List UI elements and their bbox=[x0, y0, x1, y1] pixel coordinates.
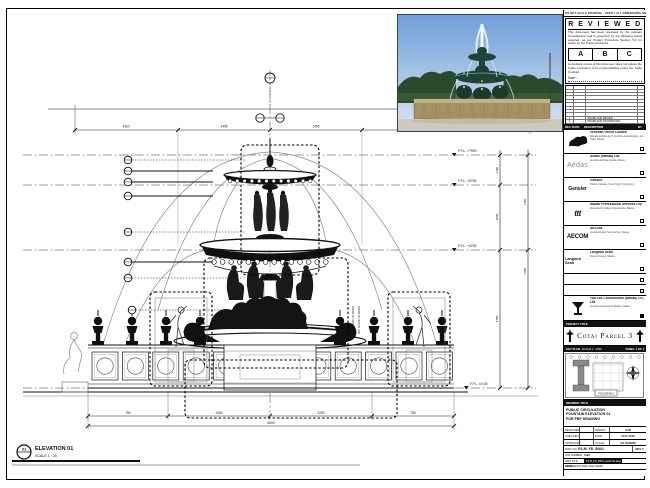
svg-text:ELEVATION 01: ELEVATION 01 bbox=[35, 446, 73, 452]
key-plan-map: FOUNTAIN bbox=[564, 352, 646, 400]
svg-text:2250: 2250 bbox=[215, 411, 222, 415]
approval-checkbox[interactable] bbox=[640, 267, 644, 271]
approval-checkbox[interactable] bbox=[640, 289, 644, 293]
svg-text:F.F.L. ±0.00: F.F.L. ±0.00 bbox=[470, 382, 488, 386]
svg-text:7900: 7900 bbox=[523, 267, 527, 274]
reviewed-stamp: R E V I E W E D This document has been r… bbox=[565, 18, 645, 84]
svg-text:750: 750 bbox=[125, 411, 131, 415]
svg-text:F.F.L. +6750: F.F.L. +6750 bbox=[458, 179, 477, 183]
gensler-logo: Gensler bbox=[565, 179, 590, 199]
status-options: A B C bbox=[568, 48, 642, 61]
ornament-icon bbox=[566, 329, 574, 342]
reviewed-paragraph-1: This document has been reviewed by the r… bbox=[568, 31, 642, 46]
status-option-b[interactable]: B bbox=[593, 49, 617, 60]
svg-text:01: 01 bbox=[22, 447, 27, 452]
approval-checkbox[interactable] bbox=[640, 219, 644, 223]
dwg-number-row: DWG NO. P3-M_FD_B501 REV 0 bbox=[564, 446, 646, 453]
company-block-aedas: Aedas Aedas (Macau) Ltd.Avenida da Praia… bbox=[564, 154, 646, 178]
aecom-logo: AECOM bbox=[565, 227, 590, 247]
svg-text:1150: 1150 bbox=[495, 166, 499, 173]
svg-text:750: 750 bbox=[410, 411, 416, 415]
contractor-block: Yau Lee Construction (Macau) Co., Ltd.Av… bbox=[564, 296, 646, 321]
svg-text:4110: 4110 bbox=[123, 125, 130, 129]
ground-line bbox=[23, 392, 538, 396]
svg-text:1495: 1495 bbox=[312, 125, 319, 129]
detail-tag-icons bbox=[256, 73, 284, 122]
company-block-aecom: AECOM AECOMAvenida Doutor Sun Yat-Sen, M… bbox=[564, 226, 646, 250]
revision-table: 1ISSUED FOR REVIEW 0ISSUED FOR INFORMATI… bbox=[565, 85, 645, 123]
langdon-seah-logo: Langdon Seah bbox=[565, 251, 590, 271]
svg-text:3150: 3150 bbox=[523, 198, 527, 205]
venetian-lion-icon bbox=[565, 131, 590, 151]
contractor-mark bbox=[640, 314, 644, 318]
empty-consultant-block bbox=[564, 274, 646, 285]
svg-text:6000: 6000 bbox=[267, 421, 274, 425]
title-block: DO NOT SCALE DRAWING · VERIFY ALL DIMENS… bbox=[563, 10, 646, 476]
fountain-photo bbox=[397, 14, 563, 132]
approval-checkbox[interactable] bbox=[640, 278, 644, 282]
svg-text:FRP SCOPE OF WORK: FRP SCOPE OF WORK bbox=[351, 306, 355, 334]
drawing-sheet: 4110 1495 1495 4110 bbox=[0, 0, 650, 488]
company-block-venetian: Venetian Orient LimitedEstrada da Baía d… bbox=[564, 130, 646, 154]
svg-text:F.F.L. +4750: F.F.L. +4750 bbox=[458, 244, 477, 248]
elevation-tag: 01 ELEVATION 01 SCALE 1 : 25 bbox=[12, 445, 360, 465]
photo-basin bbox=[414, 99, 550, 119]
svg-text:FRP SCOPE OF WORK: FRP SCOPE OF WORK bbox=[357, 306, 361, 334]
reviewed-paragraph-2: Consultant review of this document does … bbox=[568, 63, 642, 74]
svg-text:2250: 2250 bbox=[317, 411, 324, 415]
company-block-mps: ttt Macau Professional Services Ltd.Alam… bbox=[564, 202, 646, 226]
approval-checkbox[interactable] bbox=[640, 243, 644, 247]
aedas-logo: Aedas bbox=[565, 155, 590, 175]
frp-notes: FRP SCOPE OF WORK FRP SCOPE OF WORK bbox=[351, 306, 361, 334]
company-block-gensler: Gensler GenslerHarbour Square, Kwun Tong… bbox=[564, 178, 646, 202]
svg-text:SCALE 1 : 25: SCALE 1 : 25 bbox=[35, 454, 57, 458]
status-option-c[interactable]: C bbox=[618, 49, 641, 60]
svg-text:4750: 4750 bbox=[495, 315, 499, 322]
left-statue bbox=[62, 333, 88, 393]
status-option-a[interactable]: A bbox=[569, 49, 593, 60]
sheet-note: DO NOT SCALE DRAWING · VERIFY ALL DIMENS… bbox=[564, 10, 646, 17]
drawing-title: PUBLIC CIRCULATION FOUNTAIN ELEVATION 01… bbox=[564, 406, 646, 427]
project-title: Cotai Parcel 3 bbox=[564, 327, 646, 346]
reference-row: REFERENCE DWG FILE NAME : bbox=[564, 464, 646, 470]
mps-logo: ttt bbox=[565, 203, 590, 223]
svg-text:F.F.L. +7900: F.F.L. +7900 bbox=[458, 149, 477, 153]
reviewed-date-line: Date : bbox=[568, 76, 642, 82]
svg-text:FOUNTAIN: FOUNTAIN bbox=[598, 391, 613, 395]
yau-lee-logo-icon bbox=[565, 297, 590, 318]
approval-checkbox[interactable] bbox=[640, 171, 644, 175]
approval-checkbox[interactable] bbox=[640, 195, 644, 199]
approval-checkbox[interactable] bbox=[640, 147, 644, 151]
reviewed-title: R E V I E W E D bbox=[568, 21, 642, 30]
company-block-langdon-seah: Langdon Seah Langdon SeahRua do Campo, M… bbox=[564, 250, 646, 274]
svg-text:2000: 2000 bbox=[495, 213, 499, 220]
ornament-icon bbox=[636, 329, 644, 342]
svg-text:1495: 1495 bbox=[220, 125, 227, 129]
fountain-structure bbox=[174, 138, 366, 349]
empty-consultant-block bbox=[564, 285, 646, 296]
